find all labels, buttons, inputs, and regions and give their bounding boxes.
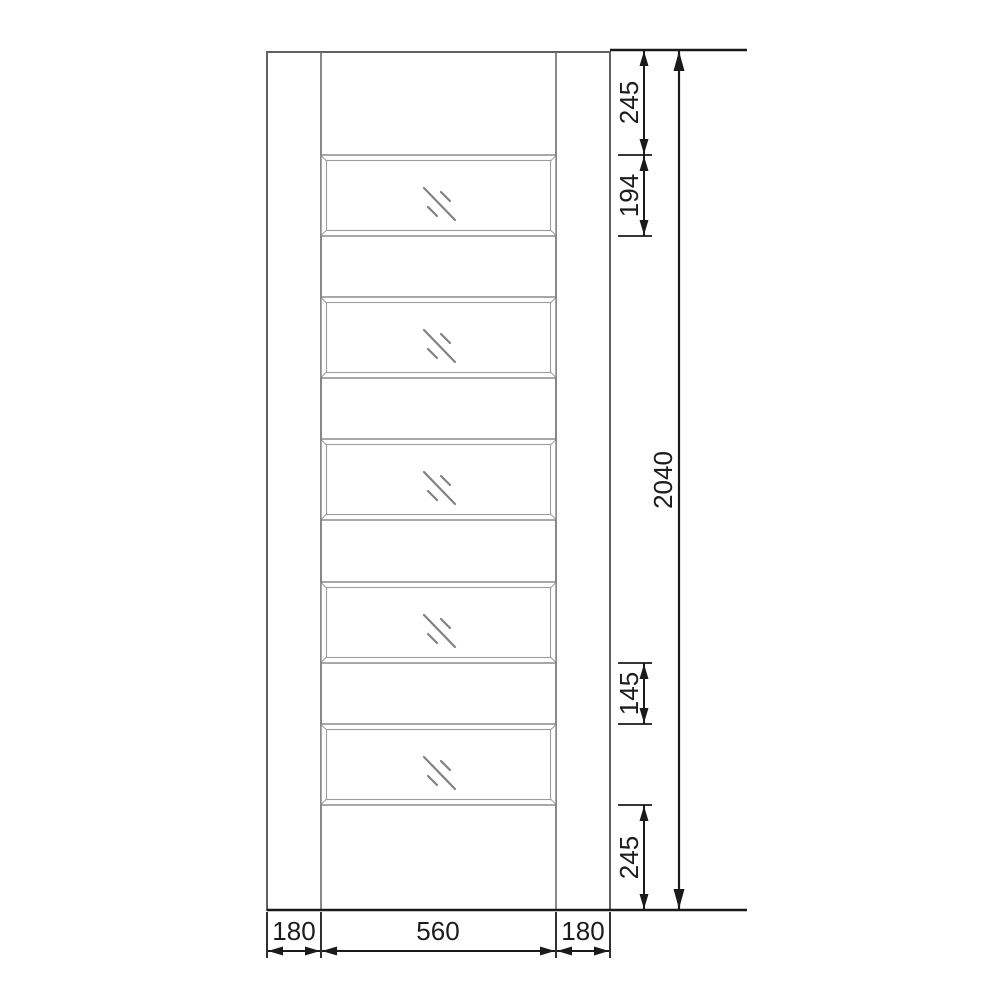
dim-label-left-stile: 180 [272,916,315,946]
panel-outer-frame [321,155,556,236]
panel-outer-frame [321,724,556,805]
technical-drawing-canvas: 245 194 2040 145 245 180 560 180 [0,0,1000,1000]
door-panel-3 [321,439,556,520]
door-drawing-svg: 245 194 2040 145 245 180 560 180 [0,0,1000,1000]
door-panel-1 [321,155,556,236]
dim-label-glazed-width: 560 [416,916,459,946]
dim-label-top-rail: 245 [614,81,644,124]
door-panel-2 [321,297,556,378]
door-panel-5 [321,724,556,805]
dim-label-mid-rail: 145 [614,672,644,715]
dim-label-right-stile: 180 [561,916,604,946]
panel-outer-frame [321,297,556,378]
dim-label-overall-height: 2040 [648,451,678,509]
panel-outer-frame [321,582,556,663]
dim-label-top-panel: 194 [614,174,644,217]
dim-label-bottom-rail: 245 [614,836,644,879]
panel-outer-frame [321,439,556,520]
door-panel-4 [321,582,556,663]
horizontal-dimensions: 180 560 180 [267,912,610,958]
